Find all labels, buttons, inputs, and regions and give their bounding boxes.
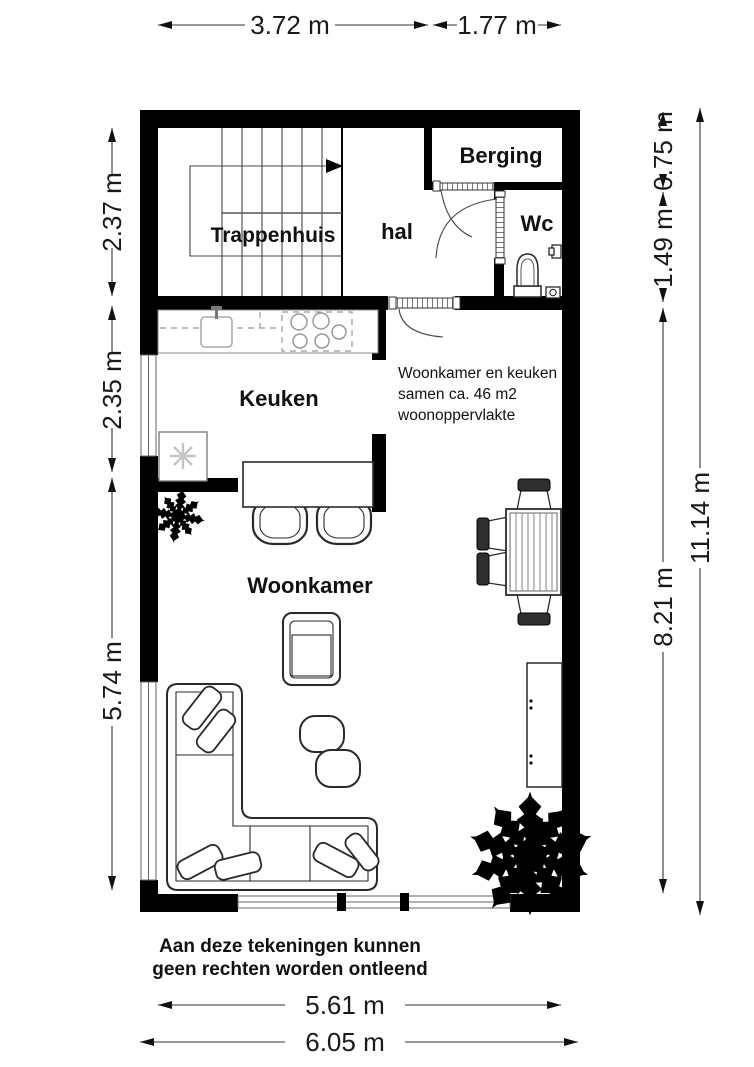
area-note-line3: woonoppervlakte (397, 407, 515, 424)
furniture (150, 462, 595, 916)
dim-right-075: 0.75 m (648, 111, 678, 191)
window-bottom (238, 893, 510, 911)
staircase (190, 128, 343, 296)
area-note-line2: samen ca. 46 m2 (398, 386, 517, 403)
dim-label: 0.75 m (648, 111, 678, 191)
window-left-kitchen (141, 355, 156, 456)
dim-label: 5.61 m (305, 990, 385, 1020)
room-label-wc: Wc (521, 211, 554, 236)
wall-berging-bottom-b (494, 182, 562, 190)
wall-bottom-right (510, 894, 580, 912)
stair-direction-arrow-icon (326, 159, 343, 173)
wall-right (562, 110, 580, 912)
dining-set (477, 479, 561, 625)
sideboard (527, 663, 562, 787)
dining-table (506, 509, 561, 595)
pouf (300, 716, 344, 752)
door-hal-woonkamer (389, 297, 460, 337)
window-left-livingroom (141, 682, 156, 880)
dim-right-1114: 11.14 m (685, 108, 715, 915)
disclaimer-line1: Aan deze tekeningen kunnen (159, 936, 421, 957)
dim-label: 1.49 m (648, 208, 678, 288)
dim-label: 6.05 m (305, 1027, 385, 1057)
toilet-roll-holder-icon (549, 245, 561, 258)
room-label-berging: Berging (459, 143, 542, 168)
door-wc (436, 191, 505, 264)
pouf (316, 750, 360, 787)
area-note-line1: Woonkamer en keuken (398, 365, 557, 382)
dim-label: 8.21 m (648, 567, 678, 647)
dim-label: 11.14 m (685, 472, 715, 564)
dim-right-821: 8.21 m (648, 308, 678, 893)
dining-chair (477, 552, 508, 586)
wall-divider-lower (372, 434, 386, 512)
dim-label: 2.37 m (97, 172, 127, 252)
dim-label: 2.35 m (97, 350, 127, 430)
room-label-trappenhuis: Trappenhuis (211, 224, 336, 247)
dim-top-372: 3.72 m (158, 10, 428, 40)
wall-bottom-left (140, 894, 238, 912)
room-label-woonkamer: Woonkamer (247, 573, 373, 598)
area-note: Woonkamer en keuken samen ca. 46 m2 woon… (397, 365, 557, 424)
dim-left-574: 5.74 m (97, 478, 127, 890)
disclaimer-line2: geen rechten worden ontleend (152, 959, 428, 980)
dim-top-177: 1.77 m (433, 10, 561, 40)
kitchen-counter (158, 310, 378, 353)
floor-drain-icon (546, 287, 560, 298)
dim-label: 1.77 m (457, 10, 537, 40)
wall-berging-left (424, 128, 432, 190)
wall-top (140, 110, 580, 128)
dim-left-235: 2.35 m (97, 306, 127, 472)
dining-chair (477, 517, 508, 551)
dim-label: 3.72 m (250, 10, 330, 40)
dim-bottom-561: 5.61 m (158, 990, 561, 1020)
room-label-keuken: Keuken (239, 386, 318, 411)
disclaimer: Aan deze tekeningen kunnen geen rechten … (152, 936, 428, 980)
wall-left-upper (140, 110, 158, 355)
dim-right-149: 1.49 m (648, 192, 678, 302)
plant-icon (150, 488, 206, 544)
freezer-icon (159, 432, 207, 481)
wall-hal-left (158, 296, 388, 310)
dining-chair (517, 594, 551, 625)
dining-chair (517, 479, 551, 510)
dim-bottom-605: 6.05 m (140, 1027, 578, 1057)
dim-label: 5.74 m (97, 641, 127, 721)
dim-left-237: 2.37 m (97, 128, 127, 296)
floorplan-canvas: Trappenhuis hal Berging Wc Keuken Woonka… (0, 0, 754, 1067)
armchair (283, 613, 340, 685)
room-label-hal: hal (381, 219, 413, 244)
kitchen-table (243, 462, 373, 507)
wc-fixtures (514, 245, 561, 298)
wall-left-middle (140, 456, 158, 682)
doors (389, 181, 505, 337)
toilet-icon (514, 254, 541, 297)
